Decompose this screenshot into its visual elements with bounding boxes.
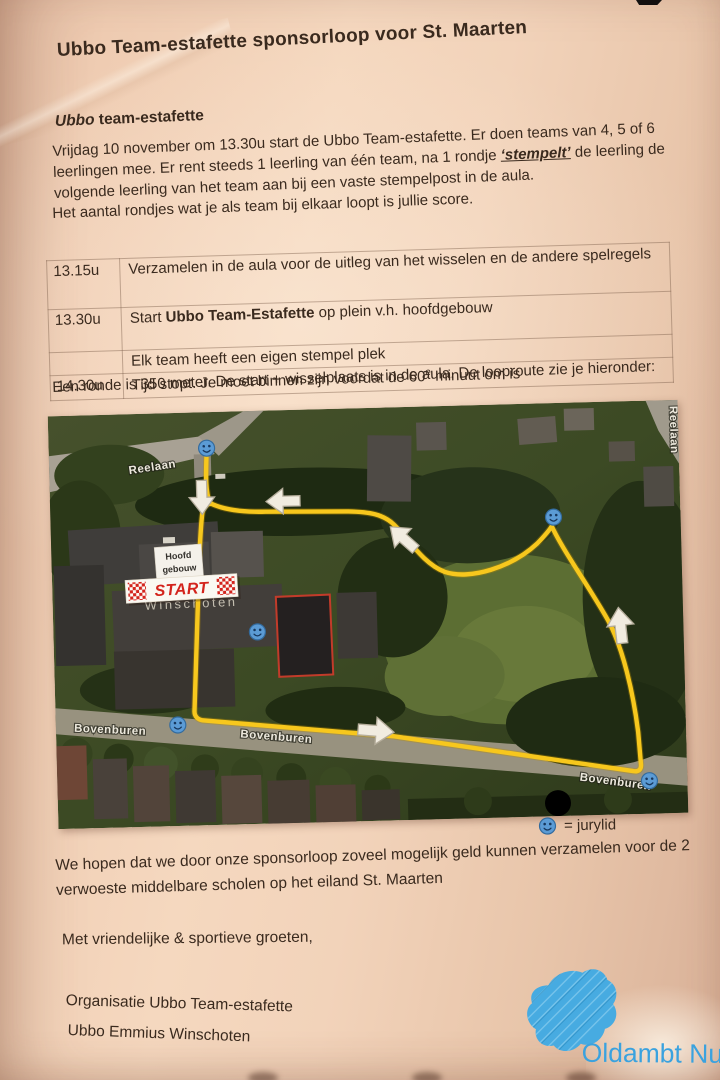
- greeting-line: Met vriendelijke & sportieve groeten,: [62, 929, 313, 950]
- map-legend: = jurylid: [538, 815, 616, 835]
- shadow-blob: [248, 1072, 278, 1080]
- section-heading-italic: Ubbo: [55, 111, 95, 130]
- checker-flag-left: [128, 582, 147, 601]
- legend-text: = jurylid: [564, 816, 616, 834]
- desc-suffix: op plein v.h. hoofdgebouw: [314, 299, 493, 321]
- section-heading-rest: team-estafette: [94, 107, 204, 128]
- intro-stempelt: ‘stempelt’: [500, 144, 571, 164]
- svg-text:Hoofd: Hoofd: [165, 550, 192, 562]
- signature-school: Ubbo Emmius Winschoten: [67, 1022, 250, 1046]
- start-label: START: [154, 580, 210, 600]
- hoofdgebouw-label: Hoofd gebouw: [154, 544, 203, 580]
- legend-jury-icon: [538, 816, 557, 835]
- document-page: Ubbo Team-estafette sponsorloop voor St.…: [0, 0, 720, 1080]
- desc-bold: Ubbo Team-Estafette: [165, 304, 314, 325]
- shadow-blob: [566, 1072, 596, 1080]
- page-title: Ubbo Team-estafette sponsorloop voor St.…: [56, 14, 596, 62]
- street-label-reelaan-vertical: Reelaan: [667, 406, 680, 454]
- time-cell: [49, 351, 123, 376]
- time-cell: 13.15u: [47, 259, 121, 310]
- desc-prefix: Start: [130, 309, 166, 327]
- oldambt-logo-text: Oldambt Nu: [582, 1038, 720, 1069]
- paper-edge-notch: [636, 0, 662, 5]
- shadow-blob: [412, 1072, 442, 1080]
- oldambt-logo: Oldambt Nu: [509, 959, 720, 1080]
- signature-org: Organisatie Ubbo Team-estafette: [65, 992, 293, 1016]
- photo-backdrop: Ubbo Team-estafette sponsorloop voor St.…: [0, 0, 720, 1080]
- route-map: Winschoten Hoofd gebou: [48, 400, 689, 829]
- time-cell: 13.30u: [48, 308, 122, 353]
- aerial-map-image: Winschoten Hoofd gebou: [48, 400, 689, 829]
- closing-paragraph: We hopen dat we door onze sponsorloop zo…: [55, 833, 716, 903]
- checker-flag-right: [216, 576, 235, 595]
- highlighted-building-outline: [276, 595, 333, 677]
